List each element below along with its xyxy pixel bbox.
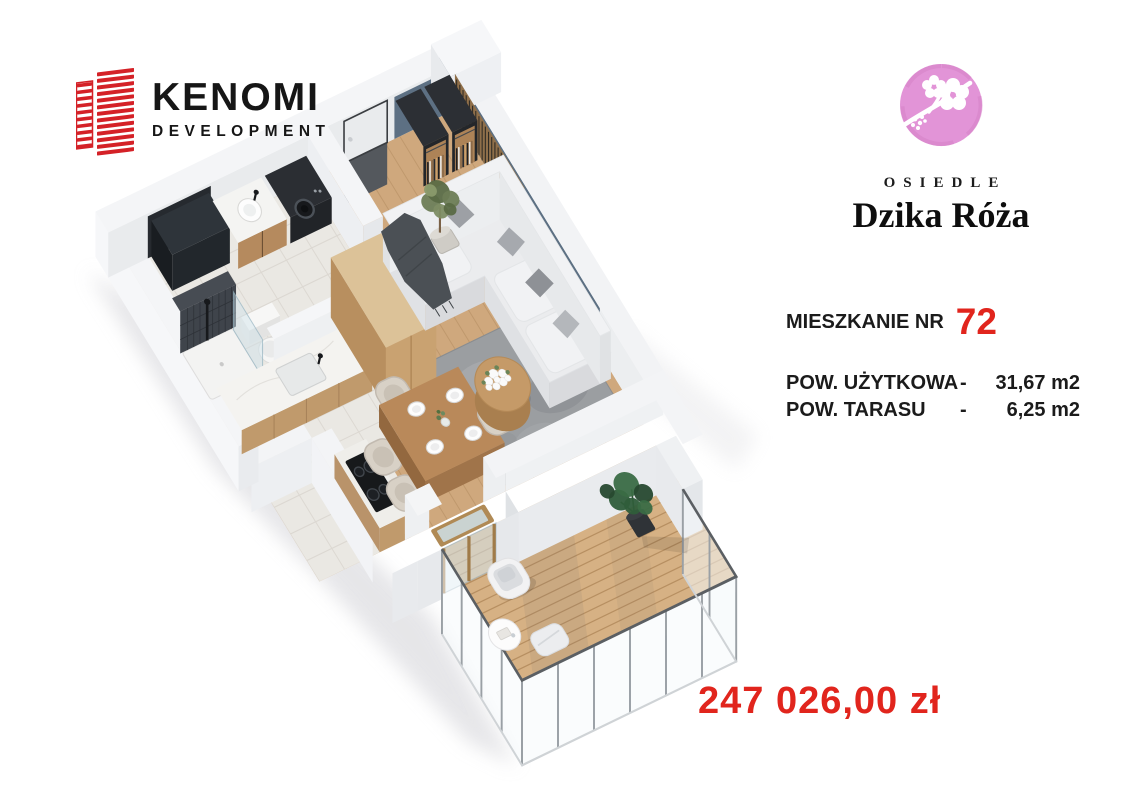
apartment-header: MIESZKANIE NR 72 <box>786 306 997 337</box>
price: 247 026,00 zł <box>698 680 941 723</box>
apartment-label: MIESZKANIE NR <box>786 311 944 337</box>
area-label: POW. UŻYTKOWA <box>786 372 960 395</box>
area-value: 6,25 m2 <box>978 399 1080 422</box>
flyer-page: KENOMI DEVELOPMENT O <box>0 0 1132 800</box>
area-value: 31,67 m2 <box>978 372 1080 395</box>
area-dash: - <box>960 399 978 422</box>
developer-wordmark: KENOMI DEVELOPMENT <box>152 62 330 141</box>
area-list: POW. UŻYTKOWA - 31,67 m2 POW. TARASU - 6… <box>786 372 1080 422</box>
rose-icon <box>891 56 991 162</box>
estate-name: Dzika Róża <box>816 194 1066 236</box>
building-icon <box>76 62 138 160</box>
area-dash: - <box>960 372 978 395</box>
estate-label: OSIEDLE <box>816 175 1066 192</box>
area-label: POW. TARASU <box>786 399 960 422</box>
apartment-number: 72 <box>956 306 997 337</box>
developer-logo: KENOMI DEVELOPMENT <box>76 62 330 160</box>
developer-name: KENOMI <box>152 78 330 117</box>
estate-logo: OSIEDLE Dzika Róża <box>816 56 1066 236</box>
developer-subtitle: DEVELOPMENT <box>152 123 330 141</box>
